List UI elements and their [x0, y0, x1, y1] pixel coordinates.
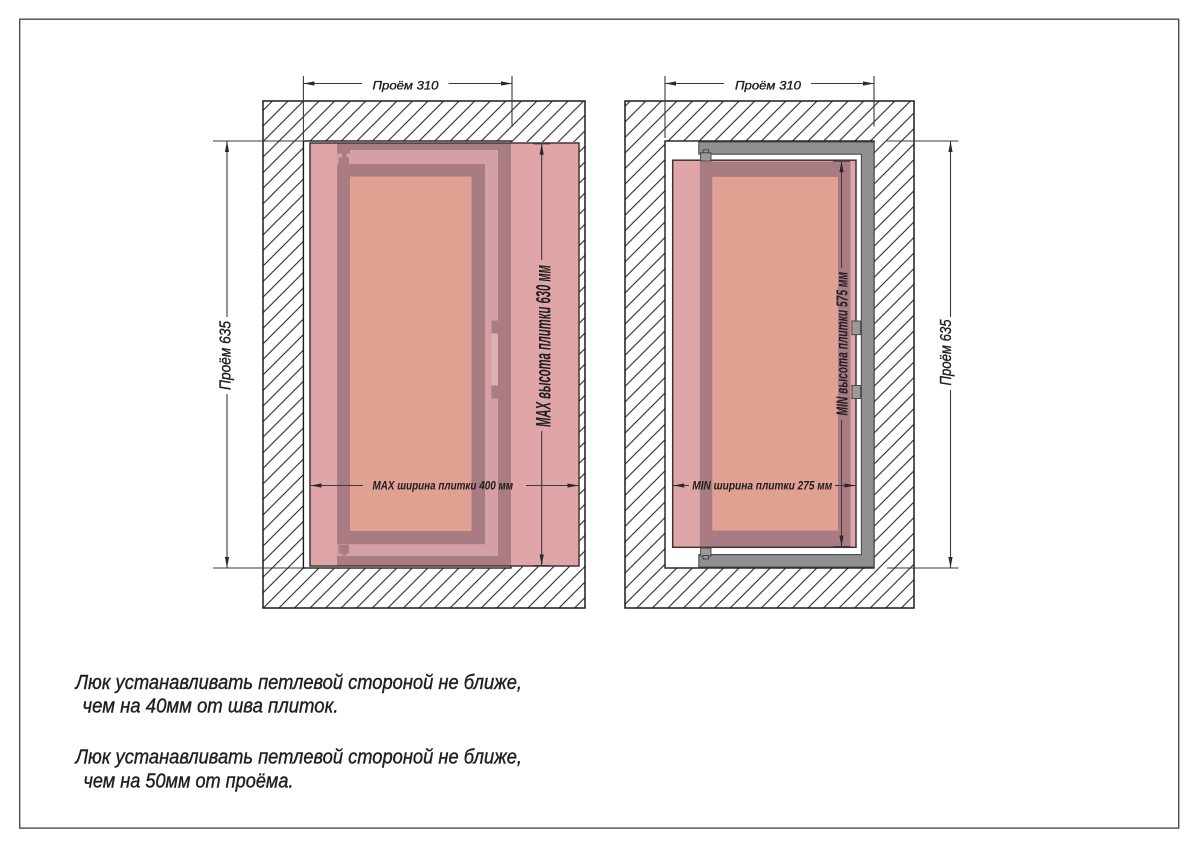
svg-text:MIN высота плитки 575 мм: MIN высота плитки 575 мм	[835, 272, 852, 416]
svg-text:Проём 635: Проём 635	[938, 319, 955, 385]
svg-text:MAX высота плитки 630 мм: MAX высота плитки 630 мм	[533, 265, 556, 427]
svg-text:чем на 50мм от проёма.: чем на 50мм от проёма.	[84, 769, 294, 792]
svg-text:MIN ширина плитки 275 мм: MIN ширина плитки 275 мм	[692, 479, 832, 493]
svg-text:MAX ширина плитки 400 мм: MAX ширина плитки 400 мм	[373, 479, 514, 493]
svg-text:Проём 310: Проём 310	[373, 78, 439, 92]
svg-text:Люк устанавливать петлевой сто: Люк устанавливать петлевой стороной не б…	[74, 671, 522, 694]
svg-text:Проём 310: Проём 310	[735, 78, 801, 92]
svg-text:чем на 40мм от шва плиток.: чем на 40мм от шва плиток.	[83, 694, 339, 717]
svg-text:Проём 635: Проём 635	[218, 321, 235, 390]
svg-text:Люк устанавливать петлевой сто: Люк устанавливать петлевой стороной не б…	[74, 746, 522, 769]
